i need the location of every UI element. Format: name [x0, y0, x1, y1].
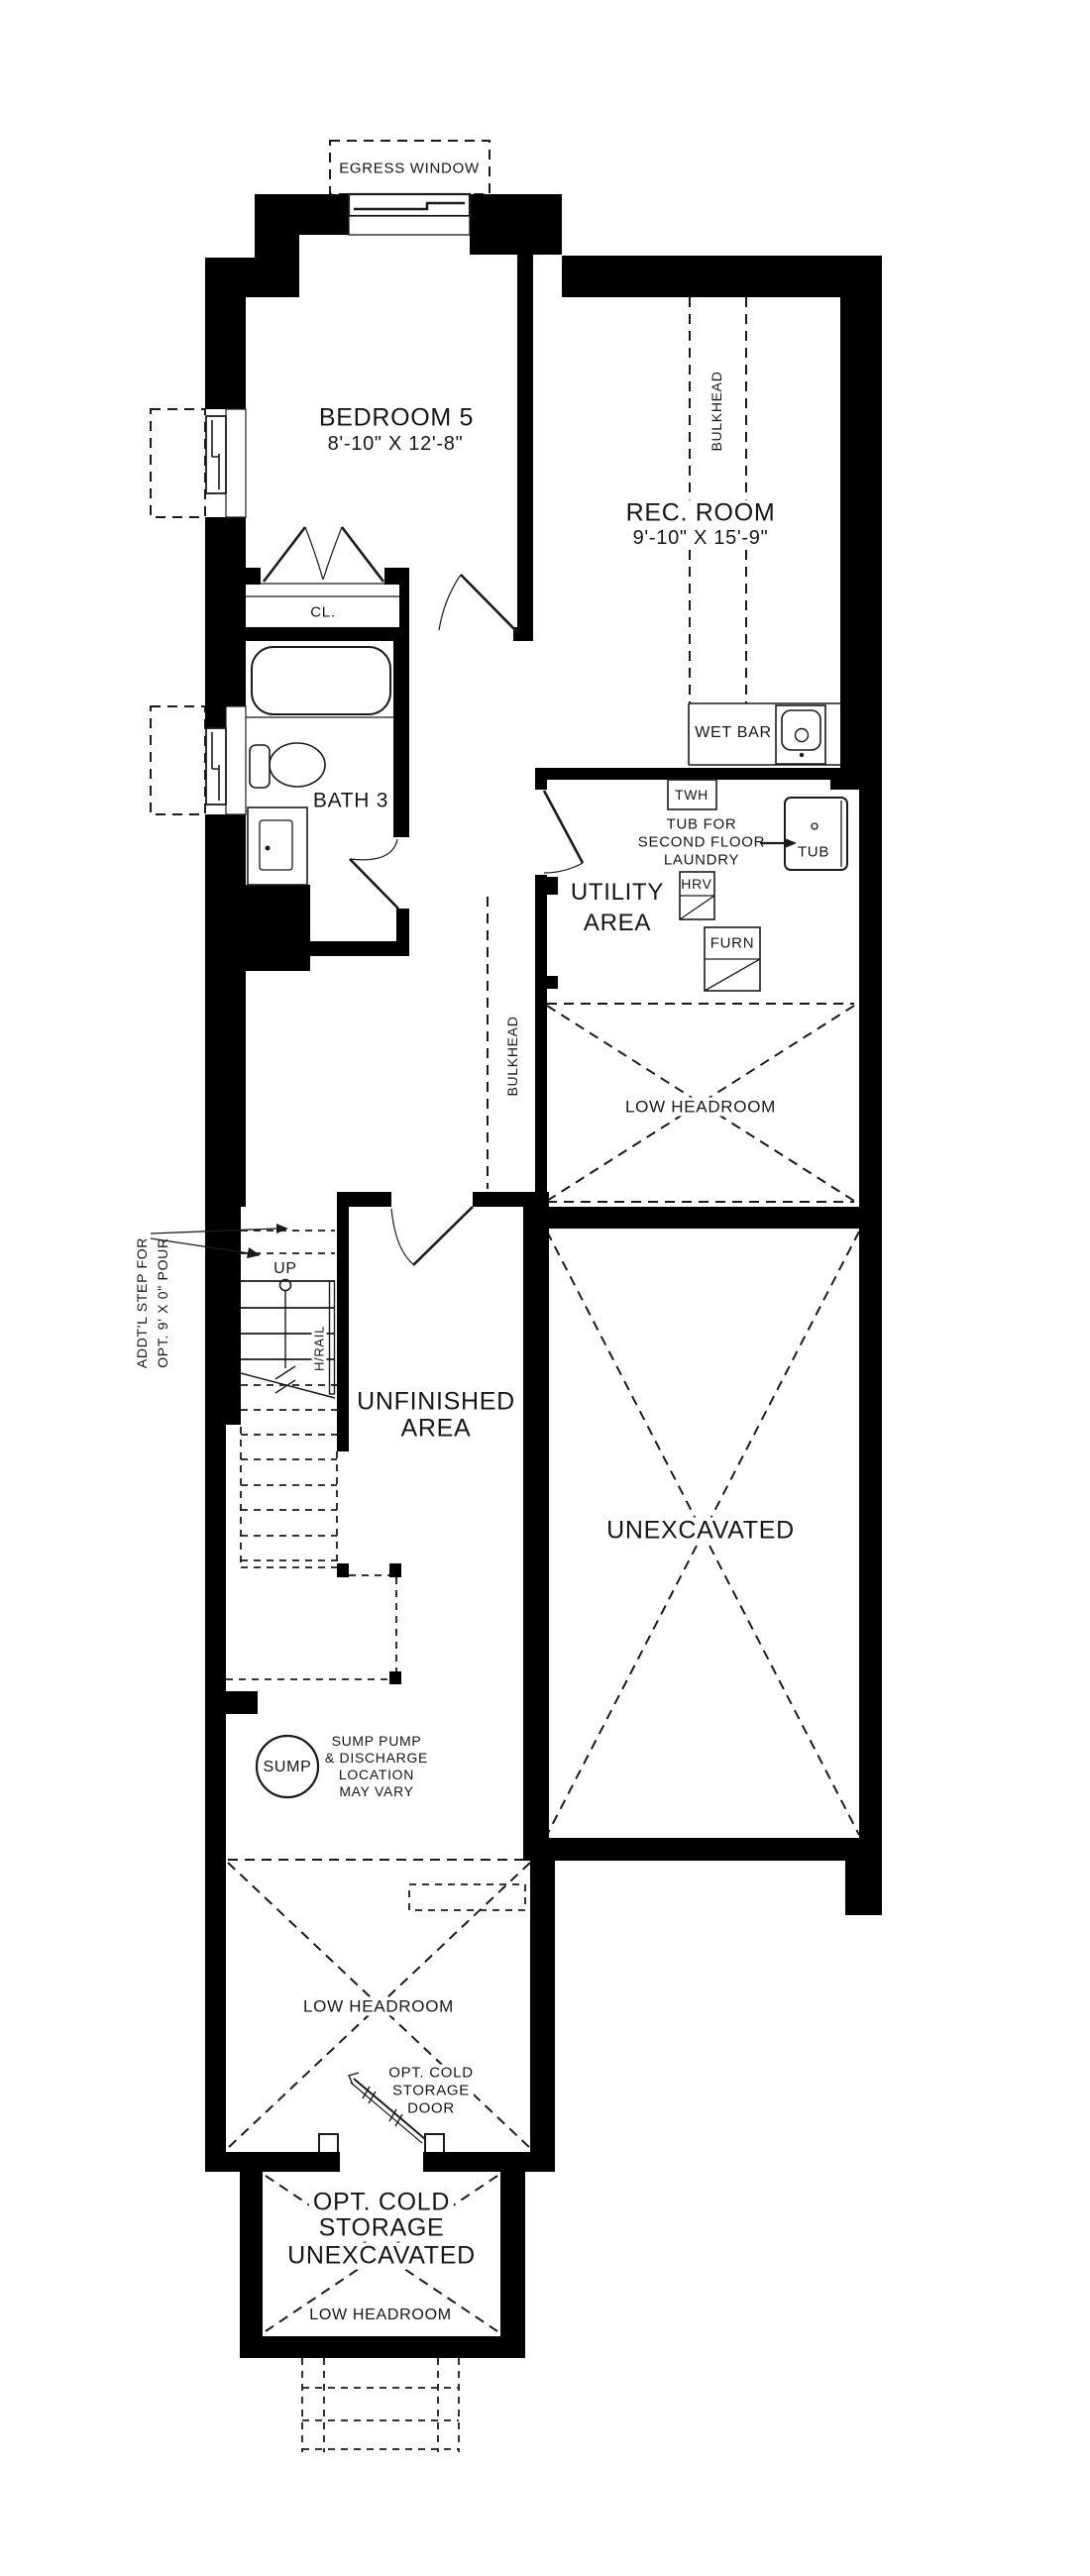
- furn-label: FURN: [710, 936, 754, 951]
- walls: [205, 194, 882, 2358]
- bath-label: BATH 3: [313, 791, 388, 811]
- dashed-lines: [151, 141, 859, 2331]
- sump-note-line1: SUMP PUMP: [332, 1734, 422, 1748]
- cold-door-label-line3: DOOR: [403, 2100, 459, 2117]
- addtl-step-label-line1: ADDT'L STEP FOR: [135, 1237, 149, 1368]
- low-headroom-label: LOW HEADROOM: [621, 1098, 780, 1117]
- addtl-step-label-line2: OPT. 9' X 0" POUR: [156, 1237, 169, 1368]
- cold-storage-low-headroom-label: LOW HEADROOM: [305, 2307, 456, 2324]
- wet-bar-label: WET BAR: [695, 725, 772, 741]
- tub-note-line2: SECOND FLOOR: [638, 835, 765, 850]
- unfinished-label-line1: UNFINISHED: [357, 1390, 515, 1415]
- cold-storage-label-line1: OPT. COLD: [309, 2190, 454, 2216]
- closet-shelf-lines: [246, 584, 399, 596]
- tub-note-line1: TUB FOR: [667, 817, 737, 832]
- bedroom-dims-label: 8'-10" X 12'-8": [328, 434, 464, 454]
- tub-label: TUB: [798, 845, 829, 860]
- bath-door-icon: [350, 839, 398, 909]
- unfinished-door-icon: [391, 1207, 473, 1265]
- twh-label: TWH: [675, 788, 708, 802]
- handrail-icon: [329, 1281, 335, 1394]
- rec-room-name-label: REC. ROOM: [622, 500, 780, 527]
- rec-room-dims-label: 9'-10" X 15'-9": [629, 527, 773, 549]
- bedroom-window-well-outline: [151, 409, 205, 517]
- bedroom-door-icon: [439, 575, 517, 632]
- vanity-sink-icon: [248, 807, 307, 885]
- tub-note-line3: LAUNDRY: [664, 853, 739, 868]
- cold-storage-label-line3: UNEXCAVATED: [283, 2243, 480, 2270]
- cold-storage-label-line2: STORAGE: [315, 2215, 449, 2242]
- bedroom-name-label: BEDROOM 5: [319, 406, 474, 431]
- bulkhead-label: BULKHEAD: [505, 1016, 519, 1096]
- sump-note-line2: & DISCHARGE: [325, 1751, 428, 1765]
- egress-window-icon: [349, 194, 470, 235]
- unfinished-label-line2: AREA: [401, 1417, 472, 1442]
- utility-door-icon: [544, 791, 583, 873]
- cold-door-label-line2: STORAGE: [388, 2083, 474, 2099]
- floor-plan: EGRESS WINDOW BEDROOM 5 8'-10" X 12'-8" …: [0, 0, 1090, 2576]
- low-headroom-label: LOW HEADROOM: [299, 1997, 458, 2016]
- bathtub-icon: [246, 647, 393, 717]
- closet-doors-icon: [264, 527, 383, 582]
- bedroom-window-icon: [206, 409, 246, 517]
- closet-label: CL.: [310, 605, 335, 620]
- toilet-icon: [250, 743, 325, 788]
- unexcavated-label: UNEXCAVATED: [602, 1518, 799, 1545]
- sump-note-line4: MAY VARY: [339, 1784, 413, 1798]
- up-label: UP: [270, 1260, 301, 1278]
- utility-label-line2: AREA: [584, 912, 651, 935]
- cold-door-label-line1: OPT. COLD: [384, 2065, 477, 2082]
- sump-note-line3: LOCATION: [339, 1768, 414, 1781]
- hrv-label: HRV: [681, 877, 711, 891]
- bulkhead-label: BULKHEAD: [709, 371, 723, 451]
- bath-window-well-outline: [151, 706, 205, 814]
- dashed-step-box: [409, 1884, 525, 1910]
- egress-window-label: EGRESS WINDOW: [339, 161, 480, 176]
- up-direction-line: [275, 1280, 295, 1394]
- sump-label: SUMP: [263, 1760, 311, 1775]
- utility-label-line1: UTILITY: [571, 881, 664, 905]
- hrail-label: H/RAIL: [312, 1322, 327, 1375]
- stairs: [151, 1224, 335, 1398]
